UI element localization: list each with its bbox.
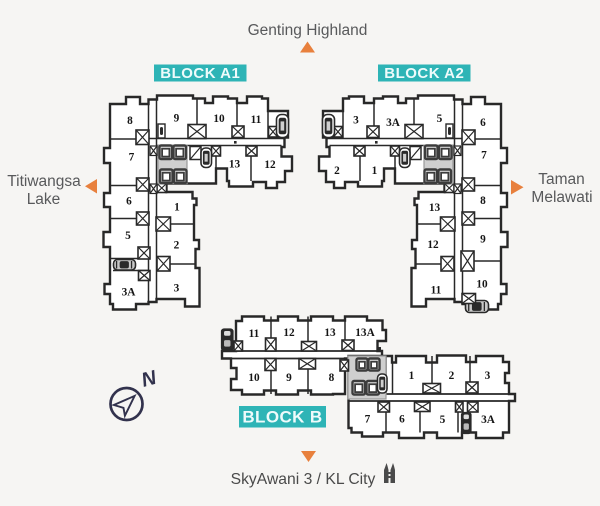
svg-text:13: 13: [324, 327, 336, 339]
svg-text:3A: 3A: [481, 414, 496, 426]
svg-text:5: 5: [437, 113, 443, 125]
svg-text:13: 13: [229, 159, 241, 171]
svg-text:13A: 13A: [355, 327, 375, 339]
svg-text:3: 3: [353, 115, 359, 127]
svg-text:Genting Highland: Genting Highland: [248, 22, 368, 39]
svg-text:3A: 3A: [386, 117, 401, 129]
svg-text:11: 11: [249, 328, 260, 340]
svg-text:BLOCK A1: BLOCK A1: [160, 65, 240, 82]
svg-text:9: 9: [480, 234, 486, 246]
svg-text:11: 11: [431, 285, 442, 297]
svg-text:6: 6: [399, 414, 405, 426]
svg-text:8: 8: [329, 372, 335, 384]
svg-text:SkyAwani 3 / KL City: SkyAwani 3 / KL City: [231, 471, 376, 488]
svg-text:10: 10: [213, 113, 225, 125]
svg-text:13: 13: [429, 202, 441, 214]
svg-text:7: 7: [129, 152, 135, 164]
svg-text:Taman: Taman: [538, 171, 585, 188]
svg-text:BLOCK A2: BLOCK A2: [384, 65, 464, 82]
svg-text:7: 7: [365, 414, 371, 426]
svg-text:5: 5: [125, 230, 131, 242]
svg-text:5: 5: [440, 414, 446, 426]
svg-text:Titiwangsa: Titiwangsa: [7, 173, 81, 190]
svg-text:6: 6: [126, 196, 132, 208]
svg-text:3A: 3A: [122, 287, 137, 299]
svg-text:2: 2: [334, 165, 340, 177]
svg-text:11: 11: [251, 114, 262, 126]
svg-text:2: 2: [174, 240, 180, 252]
svg-text:7: 7: [481, 150, 487, 162]
svg-text:10: 10: [248, 372, 260, 384]
svg-text:12: 12: [283, 327, 295, 339]
svg-text:3: 3: [174, 283, 180, 295]
svg-text:8: 8: [127, 115, 133, 127]
svg-text:12: 12: [264, 159, 276, 171]
svg-text:2: 2: [449, 370, 455, 382]
svg-text:1: 1: [372, 165, 378, 177]
svg-text:Melawati: Melawati: [531, 189, 592, 206]
svg-text:6: 6: [480, 117, 486, 129]
svg-text:9: 9: [286, 372, 292, 384]
svg-text:1: 1: [409, 370, 415, 382]
svg-text:9: 9: [174, 113, 180, 125]
svg-text:10: 10: [476, 279, 488, 291]
svg-text:1: 1: [174, 202, 180, 214]
svg-text:Lake: Lake: [27, 191, 61, 208]
svg-text:12: 12: [427, 239, 439, 251]
svg-text:3: 3: [485, 370, 491, 382]
svg-text:8: 8: [480, 195, 486, 207]
svg-text:BLOCK B: BLOCK B: [242, 408, 322, 427]
